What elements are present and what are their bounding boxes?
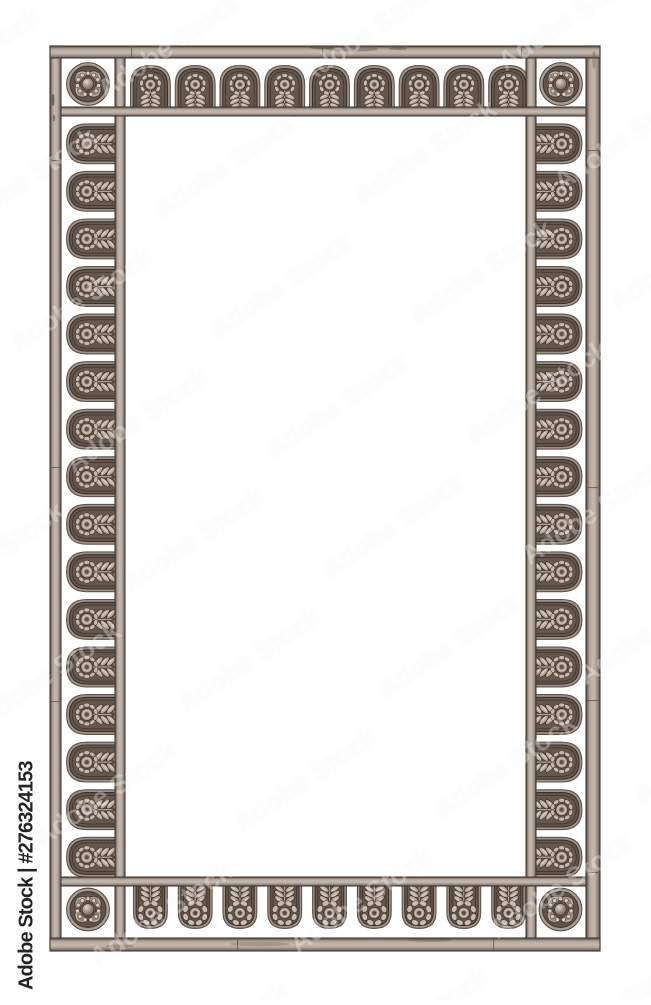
svg-text:Adobe Stock | #276324153: Adobe Stock | #276324153: [16, 761, 38, 990]
